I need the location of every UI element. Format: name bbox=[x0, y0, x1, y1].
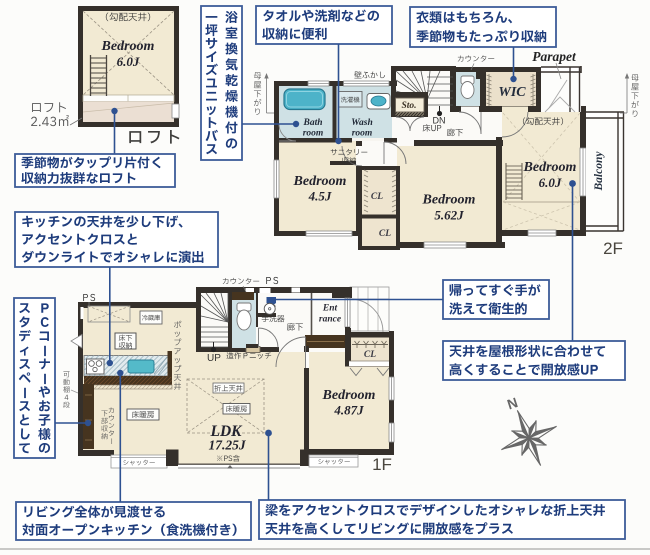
svg-text:1F: 1F bbox=[372, 455, 392, 474]
svg-text:Bedroom: Bedroom bbox=[101, 39, 155, 54]
svg-text:5.62J: 5.62J bbox=[434, 208, 464, 223]
svg-text:Bath: Bath bbox=[302, 118, 322, 128]
svg-text:Sto.: Sto. bbox=[401, 101, 416, 111]
svg-text:WIC: WIC bbox=[498, 85, 526, 100]
svg-text:rance: rance bbox=[319, 315, 342, 325]
svg-text:Bedroom: Bedroom bbox=[523, 160, 577, 175]
svg-text:UP: UP bbox=[207, 353, 221, 364]
svg-text:Balcony: Balcony bbox=[593, 151, 605, 192]
svg-text:17.25J: 17.25J bbox=[208, 438, 246, 453]
svg-text:Bedroom: Bedroom bbox=[293, 174, 347, 189]
svg-text:DN: DN bbox=[433, 116, 446, 126]
svg-text:4.5J: 4.5J bbox=[308, 189, 332, 204]
svg-text:CL: CL bbox=[379, 229, 391, 239]
svg-text:6.0J: 6.0J bbox=[539, 175, 562, 190]
svg-text:Wash: Wash bbox=[351, 118, 372, 128]
svg-text:CL: CL bbox=[364, 350, 376, 360]
svg-text:room: room bbox=[352, 129, 373, 139]
svg-text:Parapet: Parapet bbox=[532, 49, 577, 64]
svg-text:room: room bbox=[303, 129, 324, 139]
svg-text:CL: CL bbox=[371, 192, 383, 202]
svg-text:2F: 2F bbox=[603, 239, 623, 258]
svg-text:4.87J: 4.87J bbox=[333, 403, 364, 418]
svg-text:Ent: Ent bbox=[322, 304, 338, 314]
svg-text:6.0J: 6.0J bbox=[117, 54, 140, 69]
svg-text:Bedroom: Bedroom bbox=[422, 193, 476, 208]
svg-text:Bedroom: Bedroom bbox=[322, 388, 376, 403]
